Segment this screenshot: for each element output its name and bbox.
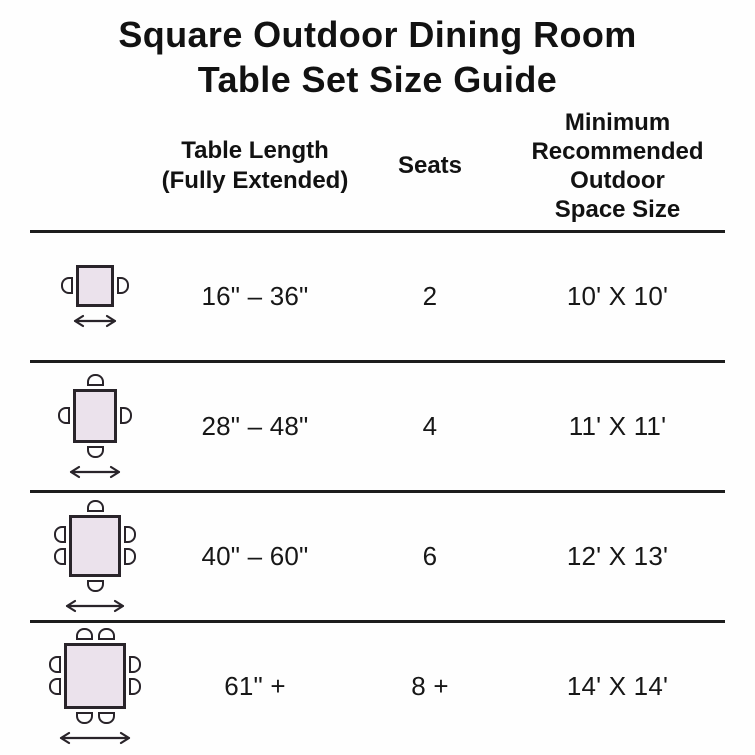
chair-icon [87,580,104,592]
seats-value: 2 [350,281,510,312]
chair-icon [76,712,93,724]
table-row: 61" + 8 + 14' X 14' [30,620,725,750]
table-top-icon [69,515,121,577]
chair-icon [54,526,66,543]
chair-icon [120,407,132,424]
chair-icon [58,407,70,424]
chair-icon [61,277,73,294]
chair-icon [129,656,141,673]
table-row: 16" – 36" 2 10' X 10' [30,230,725,360]
column-header-space-size: Minimum Recommended Outdoor Space Size [510,108,725,224]
table-row: 40" – 60" 6 12' X 13' [30,490,725,620]
column-header-seats: Seats [350,151,510,181]
space-header-line2: Recommended [510,137,725,166]
column-header-table-length: Table Length (Fully Extended) [160,136,350,196]
chair-icon [49,656,61,673]
space-header-line4: Space Size [510,195,725,224]
page-title-line1: Square Outdoor Dining Room [30,12,725,57]
table-top-view-icon [49,628,141,746]
length-arrow-icon [72,313,118,329]
space-size-value: 12' X 13' [510,541,725,572]
table-length-value: 16" – 36" [160,281,350,312]
chair-icon [87,500,104,512]
table-length-value: 40" – 60" [160,541,350,572]
chair-icon [87,374,104,386]
length-arrow-icon [64,598,126,614]
table-length-value: 61" + [160,671,350,702]
table-top-icon [73,389,117,443]
chair-icon [76,628,93,640]
seats-value: 4 [350,411,510,442]
table-length-value: 28" – 48" [160,411,350,442]
length-arrow-icon [68,464,122,480]
table-length-header-line2: (Fully Extended) [160,166,350,196]
chair-icon [117,277,129,294]
table-top-view-icon [54,500,136,614]
chair-icon [98,712,115,724]
table-top-view-icon [61,265,129,329]
page-title-line2: Table Set Size Guide [30,57,725,102]
space-header-line1: Minimum [510,108,725,137]
chair-icon [124,548,136,565]
seats-value: 8 + [350,671,510,702]
chair-icon [124,526,136,543]
column-header-row: Table Length (Fully Extended) Seats Mini… [30,102,725,230]
page-title: Square Outdoor Dining Room Table Set Siz… [30,12,725,102]
space-header-line3: Outdoor [510,166,725,195]
space-size-value: 10' X 10' [510,281,725,312]
table-top-icon [64,643,126,709]
table-length-header-line1: Table Length [160,136,350,166]
size-guide-infographic: Square Outdoor Dining Room Table Set Siz… [0,0,755,755]
chair-icon [87,446,104,458]
table-top-view-icon [58,374,132,480]
space-size-value: 14' X 14' [510,671,725,702]
length-arrow-icon [58,730,132,746]
table-row: 28" – 48" 4 11' X 11' [30,360,725,490]
chair-icon [54,548,66,565]
chair-icon [98,628,115,640]
seats-value: 6 [350,541,510,572]
chair-icon [129,678,141,695]
space-size-value: 11' X 11' [510,411,725,442]
table-top-icon [76,265,114,307]
chair-icon [49,678,61,695]
